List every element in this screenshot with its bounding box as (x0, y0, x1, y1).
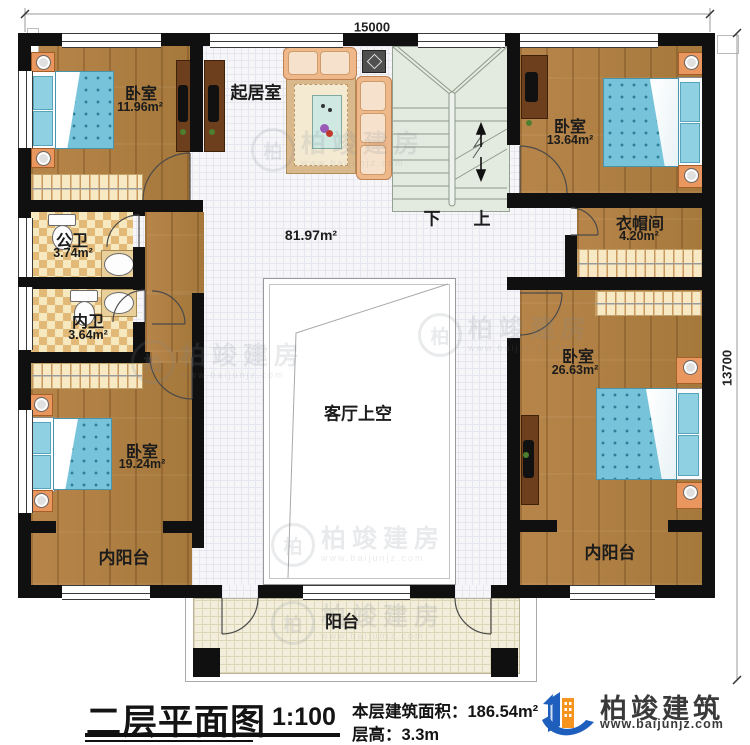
room-label-inner-balcony-right: 内阳台 (585, 539, 636, 564)
nightstand (676, 357, 704, 384)
wall (161, 33, 210, 46)
window (570, 585, 655, 600)
room-area-living: 81.97m² (285, 227, 337, 243)
room-label-living: 起居室 (231, 79, 282, 104)
bed-sheet (597, 389, 676, 479)
wall (133, 247, 145, 290)
bed-pillow (33, 76, 53, 110)
side-table-decor (366, 54, 382, 70)
wall (18, 585, 62, 598)
wall (133, 322, 145, 352)
nightstand (31, 148, 55, 168)
void-area (263, 278, 456, 585)
nightstand (676, 482, 704, 509)
window (62, 585, 150, 600)
wall (163, 521, 192, 533)
wardrobe (31, 174, 143, 203)
window (62, 33, 161, 48)
bed-pillow (680, 123, 700, 163)
sofa-cushion (320, 51, 350, 75)
wardrobe (577, 249, 704, 278)
monitor-icon (178, 85, 188, 122)
wall (410, 585, 455, 598)
monitor-icon (208, 85, 219, 122)
stairs-up-label: 上 (474, 205, 491, 230)
bed-mattress (53, 418, 112, 490)
floor-area-label: 本层建筑面积： (352, 703, 468, 721)
wall (565, 235, 577, 277)
wall (507, 277, 715, 290)
wall (18, 352, 150, 363)
drawing-title: 二层平面图 (86, 694, 266, 745)
wall (258, 585, 303, 598)
bed-pillow (678, 393, 699, 434)
wall (18, 46, 31, 71)
wall (18, 200, 203, 212)
sofa (283, 47, 357, 80)
wall (192, 293, 204, 548)
wall (343, 33, 418, 46)
room-label-balcony: 阳台 (325, 608, 359, 633)
floor-plan: 柏 柏竣建房 www.baijunjz.com 柏 柏竣建房 www.baiju… (0, 0, 750, 745)
balcony-post-right (491, 648, 518, 677)
bed-pillow (33, 111, 53, 146)
brand-logo-icon (540, 686, 596, 742)
wall (18, 33, 62, 46)
drawing-scale: 1:100 (272, 703, 336, 732)
stairs-down-label: 下 (424, 205, 441, 230)
floor-height-value: 3.3m (402, 726, 440, 744)
wall (668, 520, 707, 532)
room-area-bedroom-tl: 11.96m² (117, 100, 163, 114)
staircase (392, 46, 510, 212)
lamp-icon (35, 494, 48, 507)
wall (30, 521, 56, 533)
wall (190, 46, 203, 152)
nightstand (30, 490, 53, 512)
lamp-icon (685, 169, 698, 182)
wall (702, 46, 715, 597)
room-label-inner-balcony-left: 内阳台 (99, 544, 150, 569)
bed-sheet (604, 79, 678, 166)
lamp-icon (35, 398, 48, 411)
title-underline-thick (85, 733, 340, 737)
brand-website: www.baijunjz.com (600, 717, 724, 731)
room-area-public-bath: 3.74m² (53, 246, 93, 260)
floor-area-value: 186.54m² (468, 703, 539, 721)
wall (150, 585, 222, 598)
coffee-table (312, 95, 342, 149)
room-area-bedroom-right: 26.63m² (552, 363, 599, 377)
nightstand (678, 52, 704, 75)
wall (507, 338, 520, 585)
bed-headboard (675, 388, 703, 480)
window (210, 33, 343, 48)
window (520, 33, 658, 48)
bedroom-bl-threshold (150, 352, 192, 363)
wall (505, 33, 520, 46)
nightstand (31, 52, 55, 72)
balcony-post-left (193, 648, 220, 677)
bed-mattress (603, 78, 679, 167)
bed-mattress (55, 71, 114, 149)
bed-pillow (32, 455, 51, 489)
sofa-cushion (288, 51, 318, 75)
void-inner-border (269, 284, 450, 579)
lamp-icon (685, 56, 698, 69)
lamp-icon (684, 486, 697, 499)
plant-icon (526, 120, 532, 126)
bed-mattress (596, 388, 677, 480)
decor-dot (328, 108, 332, 112)
lamp-icon (684, 361, 697, 374)
plant-icon (523, 452, 529, 458)
window (418, 33, 505, 48)
bed-pillow (32, 422, 51, 454)
corridor-floor (145, 212, 204, 293)
monitor-icon (523, 440, 534, 478)
monitor-icon (525, 72, 538, 102)
sofa (356, 76, 392, 180)
plant-icon (180, 129, 186, 135)
sink-basin (104, 253, 134, 276)
nightstand (678, 165, 704, 188)
window (18, 71, 33, 148)
bed-sheet (56, 72, 113, 148)
lamp-icon (37, 152, 50, 165)
corridor-floor-lower (145, 293, 192, 352)
bed-pillow (678, 435, 699, 476)
decor-dot (321, 104, 325, 108)
bed-headboard (677, 77, 704, 167)
sofa-cushion (360, 113, 386, 143)
room-area-inner-bath: 3.64m² (68, 328, 108, 342)
bed-headboard (30, 71, 57, 150)
sink-basin (104, 292, 134, 314)
wall (520, 520, 557, 532)
window (18, 218, 33, 277)
dimension-top: 15000 (354, 20, 390, 35)
nightstand (30, 394, 53, 416)
side-table (362, 50, 386, 73)
wall (507, 46, 520, 145)
sofa-cushion (360, 81, 386, 111)
window (18, 410, 33, 513)
room-area-bedroom-tr: 13.64m² (547, 133, 594, 147)
window (303, 585, 410, 600)
plant-icon (209, 129, 215, 135)
wardrobe (31, 363, 143, 389)
wall (491, 585, 570, 598)
floor-area-row: 本层建筑面积：186.54m² (352, 698, 538, 722)
lamp-icon (37, 56, 50, 69)
room-label-void: 客厅上空 (324, 400, 392, 425)
title-underline-thin (85, 740, 253, 742)
wall (655, 585, 715, 598)
wardrobe (595, 291, 704, 316)
wall (133, 212, 145, 216)
wall (18, 277, 133, 289)
wall (658, 33, 715, 46)
wall (507, 193, 715, 208)
balcony-door-threshold-left (222, 585, 258, 598)
bed-sheet (54, 419, 111, 489)
corner-pilaster-outline (717, 35, 739, 54)
floor-height-row: 层高：3.3m (352, 721, 439, 745)
sofa-cushion (360, 145, 386, 175)
flower-icon (326, 130, 333, 137)
dimension-right: 13700 (720, 350, 735, 386)
balcony-door-threshold-right (455, 585, 491, 598)
room-area-cloakroom: 4.20m² (619, 229, 659, 243)
floor-height-label: 层高： (352, 726, 402, 744)
bed-pillow (680, 82, 700, 122)
window (18, 287, 33, 350)
room-area-bedroom-bl: 19.24m² (119, 457, 166, 471)
